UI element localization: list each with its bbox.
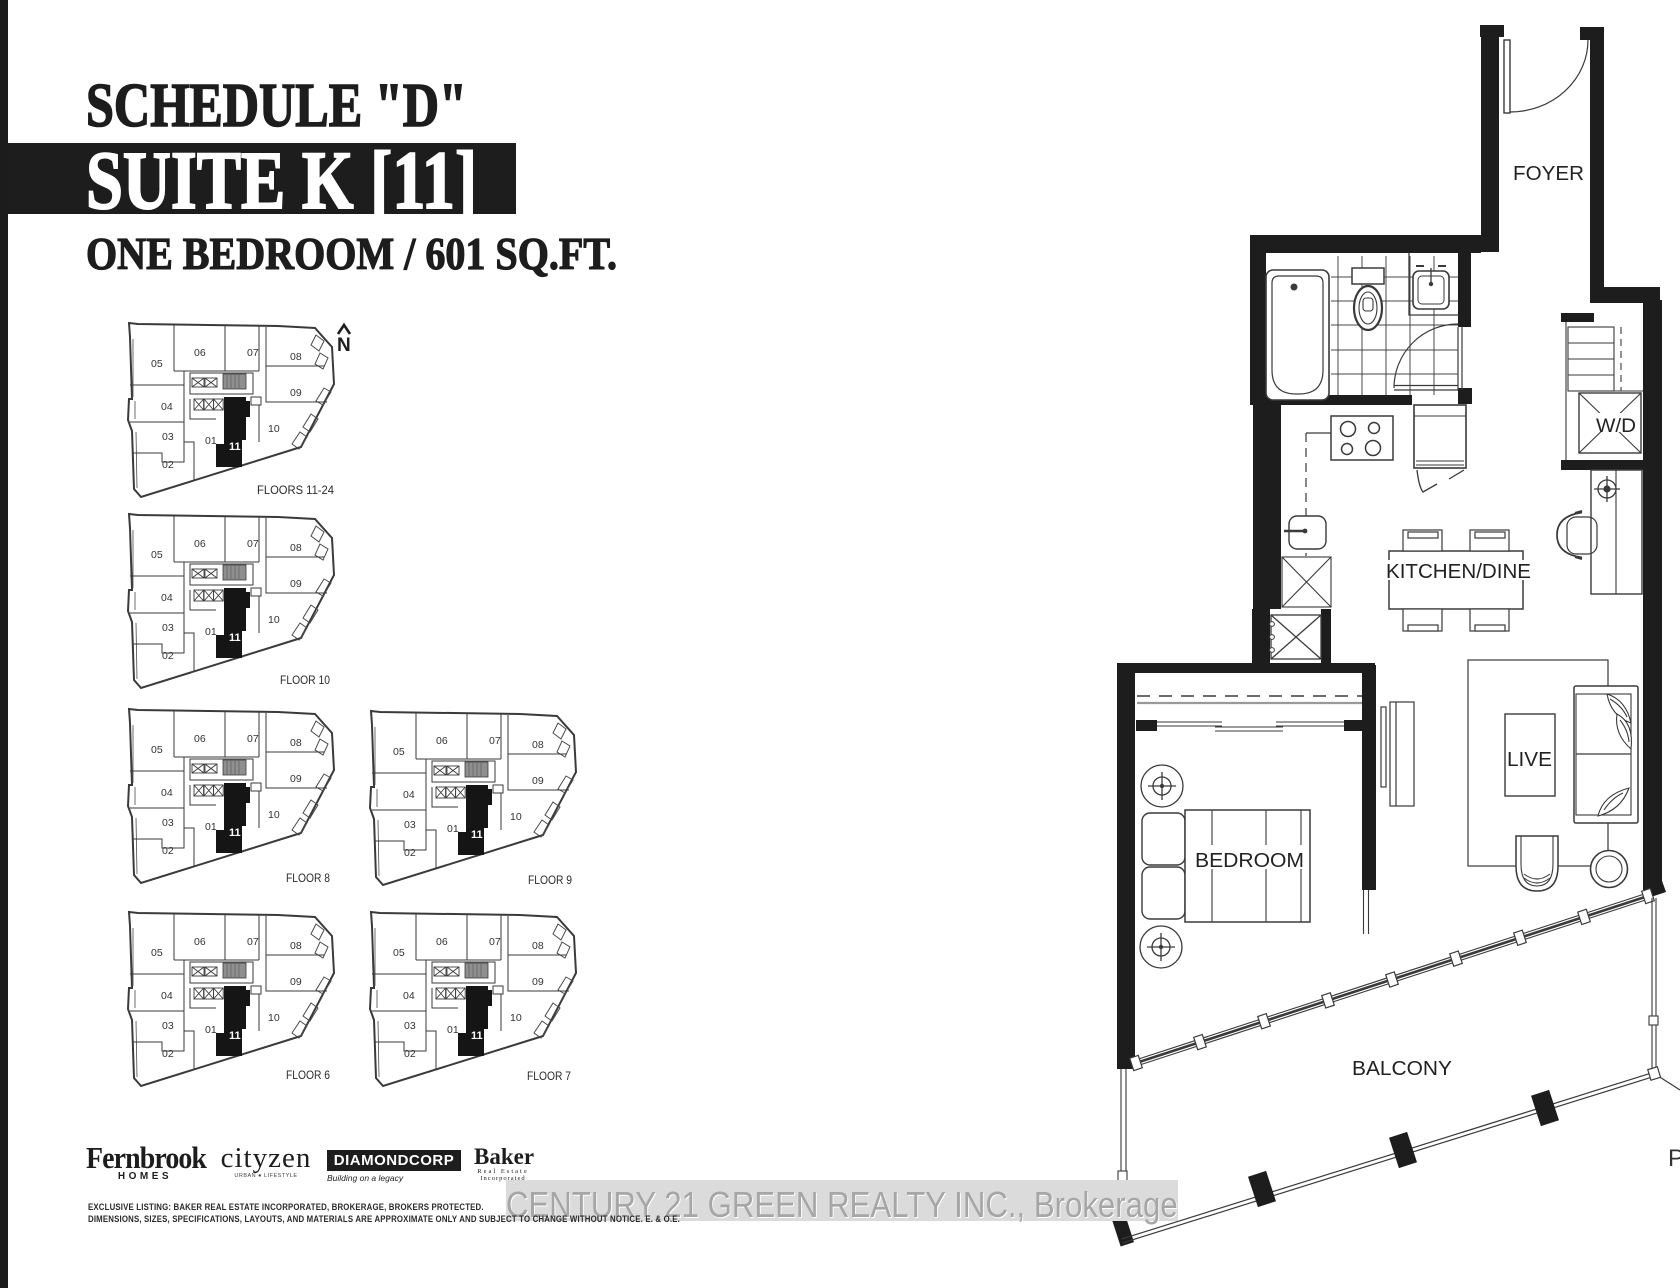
svg-text:W/D: W/D bbox=[1596, 416, 1636, 437]
svg-text:N: N bbox=[337, 335, 351, 356]
svg-text:FLOOR 6: FLOOR 6 bbox=[286, 1068, 330, 1082]
svg-text:FLOOR 10: FLOOR 10 bbox=[280, 673, 330, 687]
svg-text:FOYER: FOYER bbox=[1513, 163, 1584, 185]
svg-text:BALCONY: BALCONY bbox=[1352, 1058, 1452, 1080]
svg-text:LIVE: LIVE bbox=[1507, 749, 1552, 771]
svg-text:P: P bbox=[1668, 1145, 1680, 1172]
svg-text:FLOOR 8: FLOOR 8 bbox=[286, 871, 330, 885]
svg-text:KITCHEN/DINE: KITCHEN/DINE bbox=[1386, 561, 1531, 583]
svg-text:FLOOR 9: FLOOR 9 bbox=[528, 873, 572, 887]
svg-text:FLOOR 7: FLOOR 7 bbox=[527, 1069, 571, 1083]
svg-text:FLOORS 11-24: FLOORS 11-24 bbox=[257, 483, 334, 497]
svg-text:BEDROOM: BEDROOM bbox=[1195, 850, 1304, 872]
